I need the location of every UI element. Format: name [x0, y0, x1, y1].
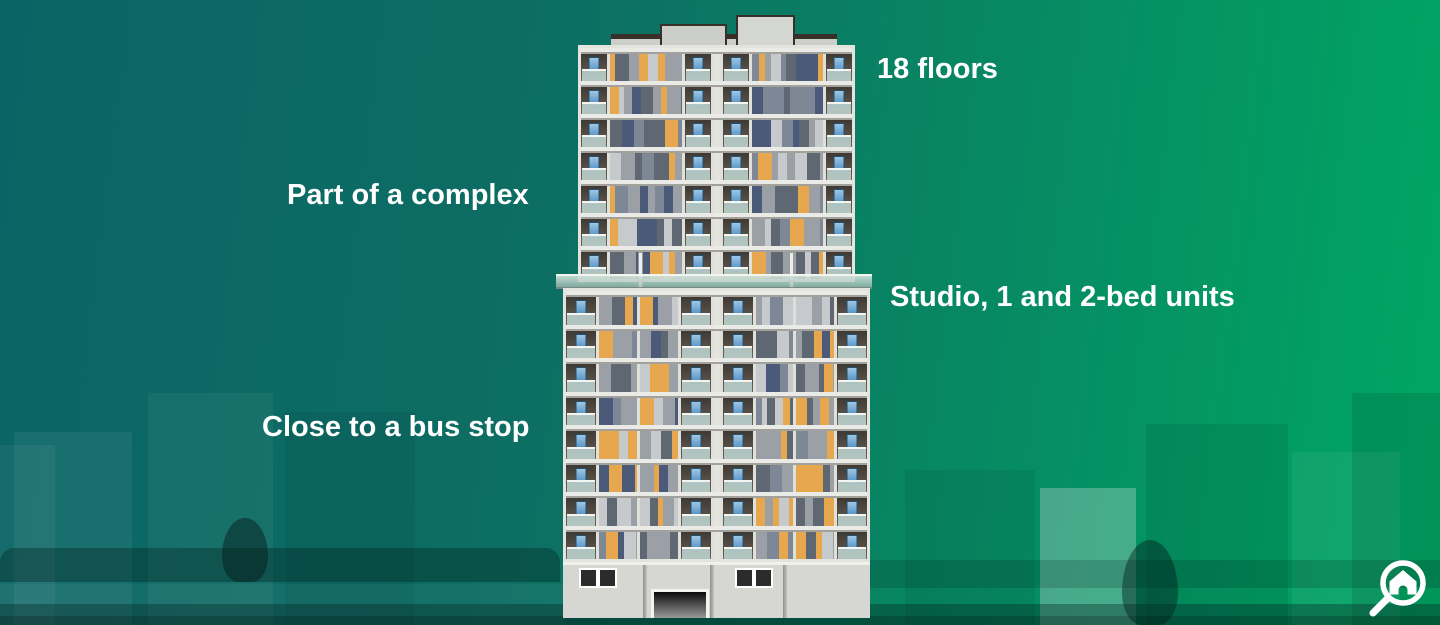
- floor-row: [581, 81, 852, 114]
- facade-panel: [756, 331, 794, 359]
- entrance-door: [651, 589, 709, 618]
- balcony-unit: [566, 498, 596, 526]
- facade-panel: [640, 364, 678, 392]
- facade-panel: [610, 120, 682, 147]
- facade-panel: [796, 465, 834, 493]
- facade-panel: [796, 498, 834, 526]
- balcony-unit: [566, 364, 596, 392]
- tower-upper-block: [578, 45, 855, 282]
- balcony-unit: [681, 498, 711, 526]
- balcony-glass-railing: [838, 547, 866, 559]
- floor-row: [566, 358, 867, 392]
- floor-units: [566, 498, 867, 526]
- balcony-glass-railing: [724, 447, 752, 459]
- facade-groove: [783, 565, 787, 618]
- facade-panel: [610, 186, 682, 213]
- floor-row: [581, 213, 852, 246]
- balcony-glass-railing: [724, 547, 752, 559]
- balcony-unit: [723, 87, 749, 114]
- facade-panel: [752, 186, 824, 213]
- floor-units: [581, 186, 852, 213]
- balcony-unit: [723, 532, 753, 560]
- center-mullion: [714, 498, 720, 526]
- balcony-unit: [581, 219, 607, 246]
- balcony-glass-railing: [838, 447, 866, 459]
- floor-units: [581, 120, 852, 147]
- balcony-glass-railing: [582, 201, 606, 213]
- balcony-unit: [566, 297, 596, 325]
- balcony-unit: [723, 54, 749, 81]
- center-mullion: [714, 120, 720, 147]
- balcony-glass-railing: [682, 447, 710, 459]
- ground-window: [754, 568, 773, 588]
- facade-panel: [796, 297, 834, 325]
- balcony-glass-railing: [724, 168, 748, 180]
- facade-panel: [796, 364, 834, 392]
- floor-row: [566, 459, 867, 493]
- facade-panel: [796, 532, 834, 560]
- balcony-unit: [826, 219, 852, 246]
- balcony-unit: [681, 331, 711, 359]
- balcony-unit: [723, 498, 753, 526]
- floor-units: [581, 87, 852, 114]
- floor-units: [581, 219, 852, 246]
- floor-row: [566, 526, 867, 560]
- balcony-glass-railing: [686, 168, 710, 180]
- balcony-glass-railing: [827, 135, 851, 147]
- facade-panel: [599, 364, 637, 392]
- center-mullion: [714, 297, 720, 325]
- balcony-glass-railing: [682, 313, 710, 325]
- facade-panel: [796, 431, 834, 459]
- label-floors: 18 floors: [877, 52, 998, 86]
- balcony-unit: [723, 186, 749, 213]
- balcony-glass-railing: [838, 313, 866, 325]
- floor-row: [566, 392, 867, 426]
- balcony-glass-railing: [724, 69, 748, 81]
- balcony-glass-railing: [724, 380, 752, 392]
- facade-panel: [756, 364, 794, 392]
- floor-row: [566, 325, 867, 359]
- balcony-unit: [581, 87, 607, 114]
- balcony-unit: [723, 431, 753, 459]
- balcony-glass-railing: [682, 380, 710, 392]
- infographic-canvas: 18 floors Part of a complex Studio, 1 an…: [0, 0, 1440, 625]
- facade-panel: [752, 54, 824, 81]
- facade-panel: [640, 498, 678, 526]
- balcony-unit: [826, 54, 852, 81]
- balcony-unit: [723, 153, 749, 180]
- balcony-glass-railing: [827, 234, 851, 246]
- facade-panel: [599, 498, 637, 526]
- balcony-glass-railing: [838, 380, 866, 392]
- floor-units: [566, 532, 867, 560]
- balcony-glass-railing: [724, 234, 748, 246]
- floor-row: [581, 114, 852, 147]
- balcony-unit: [685, 87, 711, 114]
- facade-panel: [756, 532, 794, 560]
- facade-panel: [752, 120, 824, 147]
- balcony-unit: [681, 465, 711, 493]
- balcony-unit: [723, 364, 753, 392]
- balcony-unit: [581, 153, 607, 180]
- balcony-glass-railing: [582, 234, 606, 246]
- balcony-glass-railing: [838, 480, 866, 492]
- balcony-unit: [581, 186, 607, 213]
- balcony-unit: [826, 120, 852, 147]
- balcony-glass-railing: [724, 201, 748, 213]
- balcony-glass-railing: [686, 234, 710, 246]
- label-bus-stop: Close to a bus stop: [262, 410, 529, 444]
- balcony-unit: [723, 331, 753, 359]
- facade-panel: [599, 431, 637, 459]
- label-units: Studio, 1 and 2-bed units: [890, 280, 1235, 314]
- facade-panel: [610, 219, 682, 246]
- center-mullion: [714, 54, 720, 81]
- balcony-glass-railing: [838, 413, 866, 425]
- center-mullion: [714, 431, 720, 459]
- house-icon: [1390, 570, 1417, 595]
- facade-groove: [710, 565, 714, 618]
- facade-panel: [610, 87, 682, 114]
- facade-panel: [640, 465, 678, 493]
- balcony-glass-railing: [724, 102, 748, 114]
- facade-panel: [640, 297, 678, 325]
- floor-units: [566, 465, 867, 493]
- balcony-unit: [685, 54, 711, 81]
- facade-panel: [610, 54, 682, 81]
- balcony-unit: [566, 398, 596, 426]
- floor-units: [566, 398, 867, 426]
- facade-panel: [599, 331, 637, 359]
- label-complex: Part of a complex: [287, 178, 529, 212]
- balcony-glass-railing: [582, 135, 606, 147]
- facade-panel: [599, 465, 637, 493]
- balcony-glass-railing: [827, 69, 851, 81]
- facade-groove: [643, 565, 647, 618]
- floor-units: [566, 431, 867, 459]
- balcony-unit: [837, 398, 867, 426]
- facade-panel: [599, 532, 637, 560]
- facade-panel: [756, 398, 794, 426]
- balcony-unit: [566, 431, 596, 459]
- facade-panel: [752, 219, 824, 246]
- balcony-glass-railing: [682, 514, 710, 526]
- floor-row: [581, 48, 852, 81]
- balcony-glass-railing: [567, 413, 595, 425]
- balcony-unit: [826, 186, 852, 213]
- floor-units: [581, 54, 852, 81]
- balcony-unit: [685, 219, 711, 246]
- center-mullion: [714, 186, 720, 213]
- balcony-glass-railing: [567, 547, 595, 559]
- ground-floor: [563, 562, 870, 618]
- balcony-unit: [723, 297, 753, 325]
- balcony-glass-railing: [724, 313, 752, 325]
- balcony-glass-railing: [567, 346, 595, 358]
- magnifier-handle: [1373, 598, 1388, 613]
- balcony-glass-railing: [567, 380, 595, 392]
- balcony-glass-railing: [567, 480, 595, 492]
- balcony-unit: [826, 153, 852, 180]
- facade-panel: [640, 532, 678, 560]
- balcony-glass-railing: [724, 514, 752, 526]
- facade-panel: [796, 398, 834, 426]
- floor-units: [566, 364, 867, 392]
- facade-panel: [640, 398, 678, 426]
- balcony-unit: [837, 465, 867, 493]
- facade-panel: [599, 398, 637, 426]
- facade-panel: [756, 431, 794, 459]
- balcony-unit: [566, 331, 596, 359]
- balcony-unit: [681, 364, 711, 392]
- ground-window: [579, 568, 598, 588]
- magnifier-house-logo: [1362, 546, 1440, 624]
- balcony-unit: [581, 54, 607, 81]
- balcony-unit: [685, 186, 711, 213]
- center-mullion: [714, 331, 720, 359]
- center-mullion: [714, 153, 720, 180]
- balcony-glass-railing: [682, 547, 710, 559]
- floor-row: [566, 425, 867, 459]
- balcony-unit: [723, 219, 749, 246]
- facade-panel: [756, 465, 794, 493]
- balcony-glass-railing: [724, 135, 748, 147]
- ground-window: [598, 568, 617, 588]
- balcony-unit: [837, 331, 867, 359]
- center-mullion: [714, 398, 720, 426]
- balcony-unit: [837, 364, 867, 392]
- balcony-glass-railing: [682, 413, 710, 425]
- balcony-glass-railing: [724, 413, 752, 425]
- balcony-glass-railing: [827, 168, 851, 180]
- balcony-unit: [837, 431, 867, 459]
- balcony-unit: [837, 498, 867, 526]
- floor-row: [566, 492, 867, 526]
- balcony-unit: [723, 465, 753, 493]
- balcony-glass-railing: [686, 135, 710, 147]
- balcony-glass-railing: [838, 514, 866, 526]
- balcony-glass-railing: [724, 346, 752, 358]
- facade-panel: [756, 498, 794, 526]
- facade-panel: [610, 153, 682, 180]
- balcony-glass-railing: [682, 346, 710, 358]
- center-mullion: [714, 87, 720, 114]
- balcony-unit: [685, 153, 711, 180]
- facade-panel: [599, 297, 637, 325]
- balcony-glass-railing: [567, 447, 595, 459]
- balcony-glass-railing: [686, 102, 710, 114]
- facade-panel: [796, 331, 834, 359]
- balcony-unit: [566, 532, 596, 560]
- balcony-glass-railing: [567, 514, 595, 526]
- balcony-glass-railing: [567, 313, 595, 325]
- balcony-unit: [837, 297, 867, 325]
- facade-panel: [752, 87, 824, 114]
- center-mullion: [714, 219, 720, 246]
- floor-row: [581, 180, 852, 213]
- balcony-unit: [681, 431, 711, 459]
- balcony-unit: [681, 398, 711, 426]
- balcony-glass-railing: [827, 102, 851, 114]
- balcony-unit: [826, 87, 852, 114]
- facade-panel: [756, 297, 794, 325]
- center-mullion: [714, 465, 720, 493]
- balcony-unit: [723, 120, 749, 147]
- facade-panel: [640, 331, 678, 359]
- balcony-unit: [681, 532, 711, 560]
- balcony-glass-railing: [686, 69, 710, 81]
- balcony-glass-railing: [686, 201, 710, 213]
- center-mullion: [714, 532, 720, 560]
- balcony-unit: [837, 532, 867, 560]
- balcony-unit: [723, 398, 753, 426]
- balcony-unit: [681, 297, 711, 325]
- balcony-glass-railing: [582, 102, 606, 114]
- facade-panel: [640, 431, 678, 459]
- balcony-glass-railing: [582, 168, 606, 180]
- balcony-glass-railing: [827, 201, 851, 213]
- podium-glass-canopy: [556, 274, 872, 289]
- floor-row: [581, 147, 852, 180]
- ground-window: [735, 568, 754, 588]
- balcony-glass-railing: [682, 480, 710, 492]
- balcony-unit: [685, 120, 711, 147]
- facade-panel: [752, 153, 824, 180]
- center-mullion: [714, 364, 720, 392]
- floor-units: [566, 331, 867, 359]
- podium-lower-block: [563, 288, 870, 562]
- balcony-glass-railing: [838, 346, 866, 358]
- floor-units: [566, 297, 867, 325]
- balcony-unit: [566, 465, 596, 493]
- balcony-unit: [581, 120, 607, 147]
- balcony-glass-railing: [724, 480, 752, 492]
- floor-units: [581, 153, 852, 180]
- balcony-glass-railing: [582, 69, 606, 81]
- floor-row: [566, 291, 867, 325]
